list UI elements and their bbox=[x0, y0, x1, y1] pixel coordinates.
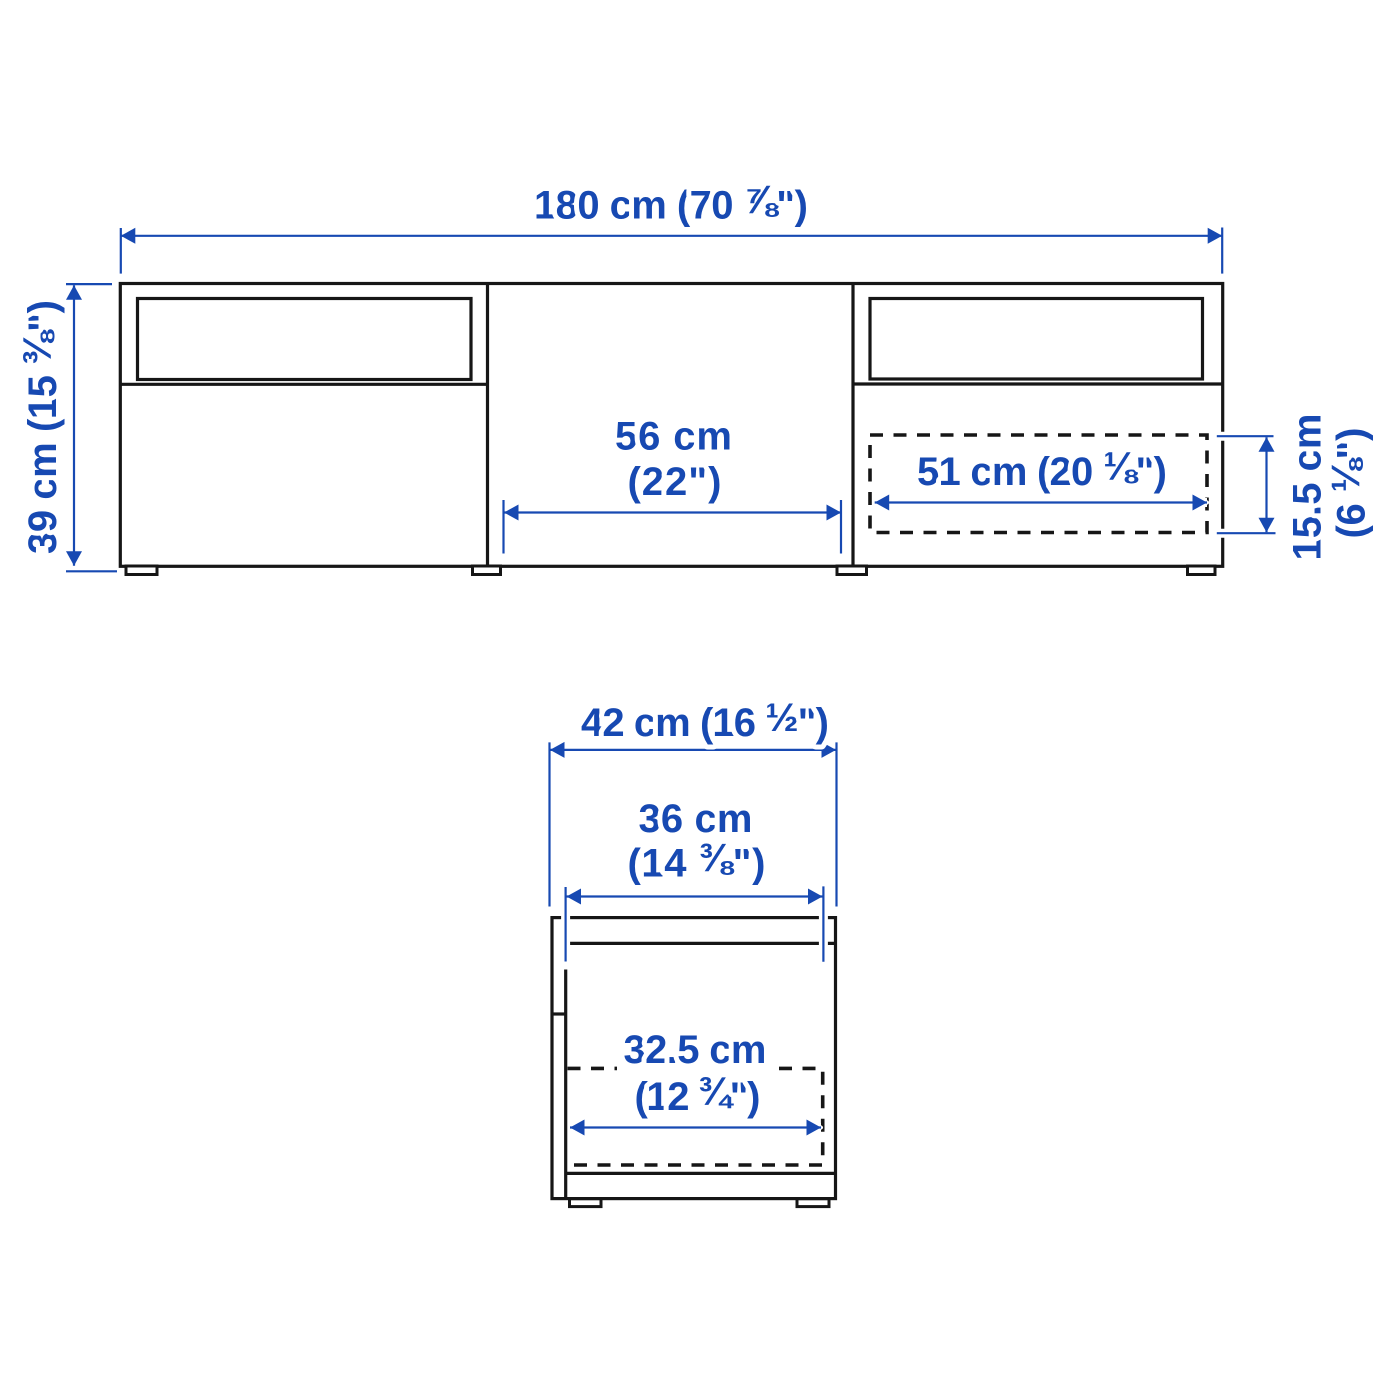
svg-text:36 cm: 36 cm bbox=[639, 797, 753, 841]
svg-text:(12 ¾"): (12 ¾") bbox=[635, 1070, 761, 1119]
svg-text:51 cm (20 ⅛"): 51 cm (20 ⅛") bbox=[917, 445, 1167, 494]
svg-text:(14 ⅜"): (14 ⅜") bbox=[628, 836, 766, 885]
svg-text:(6 ⅛"): (6 ⅛") bbox=[1324, 428, 1373, 539]
svg-text:15.5 cm: 15.5 cm bbox=[1285, 414, 1329, 561]
svg-text:180 cm (70 ⅞"): 180 cm (70 ⅞") bbox=[534, 178, 808, 227]
svg-text:39 cm (15 ⅜"): 39 cm (15 ⅜") bbox=[16, 300, 65, 554]
svg-text:56 cm: 56 cm bbox=[615, 414, 732, 458]
svg-text:(22"): (22") bbox=[628, 460, 722, 504]
svg-text:32.5 cm: 32.5 cm bbox=[624, 1028, 767, 1072]
svg-text:42 cm (16 ½"): 42 cm (16 ½") bbox=[581, 696, 829, 745]
